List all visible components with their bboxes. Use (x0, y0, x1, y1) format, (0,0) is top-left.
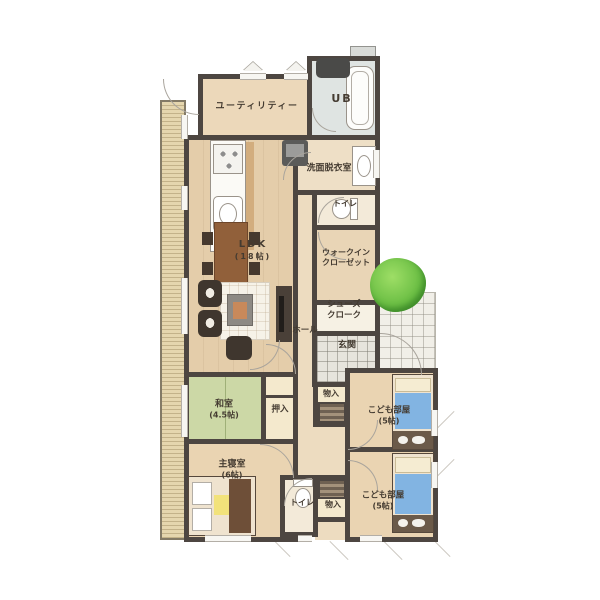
label-storage-lower: 物入 (325, 500, 341, 510)
washbasin-bowl (357, 155, 371, 177)
window (205, 535, 251, 542)
floor-chair (226, 336, 252, 360)
label-washroom: 洗面脱衣室 (306, 163, 351, 174)
sliding-door-to-deck (181, 278, 188, 334)
table-top-item (233, 302, 247, 319)
eave-mark (329, 541, 348, 560)
label-entrance: 玄関 (338, 340, 356, 351)
label-kids-lower: こども部屋(5帖) (362, 491, 405, 512)
armchair (198, 280, 222, 307)
heat-pump-unit (316, 58, 350, 78)
window (284, 73, 308, 80)
shelf-item (412, 519, 425, 527)
label-hall: ホール (292, 326, 318, 337)
awning-window-mark (243, 62, 263, 71)
bed-foot-shelf (393, 431, 433, 449)
window (298, 535, 312, 542)
bed-cushion (214, 495, 230, 515)
tv-screen (279, 296, 284, 332)
floor-plan: ユーティリティー UB 洗面脱衣室 トイレ ウォークインクローゼット シューズク… (0, 0, 600, 600)
stove (213, 144, 243, 174)
window (360, 535, 382, 542)
bed-pillow (192, 508, 212, 531)
window (373, 150, 380, 178)
master-bed (188, 476, 256, 536)
window (431, 410, 438, 436)
dining-chair (249, 262, 260, 275)
sliding-door-to-deck (181, 385, 188, 437)
label-toilet-lower: トイレ (290, 498, 314, 508)
label-ldk: LDK(18帖) (235, 239, 271, 262)
window (181, 115, 188, 139)
bed-blanket (229, 479, 251, 533)
living-table (227, 294, 253, 326)
closet-divider-wall (263, 395, 296, 398)
dining-chair (202, 232, 213, 245)
window (181, 186, 188, 210)
eave-mark (435, 411, 454, 430)
dining-chair (202, 262, 213, 275)
label-oshiire: 押入 (271, 405, 288, 416)
label-storage-upper: 物入 (323, 389, 339, 399)
storage-shelf (318, 402, 346, 423)
tv-board (276, 286, 292, 342)
bed-pillow (395, 457, 431, 473)
label-toilet-upper: トイレ (333, 199, 357, 209)
bed-pillow (192, 482, 212, 505)
armchair (198, 310, 222, 337)
label-master-bedroom: 主寝室(6帖) (218, 459, 245, 480)
bed-pillow (395, 378, 431, 392)
shelf-item (398, 436, 408, 444)
label-japanese-room: 和室(4.5帖) (209, 399, 238, 420)
bed-foot-shelf (393, 515, 433, 532)
storage-shelf (318, 479, 346, 499)
label-kids-upper: こども部屋(5帖) (368, 406, 411, 427)
label-shoe-closet: シューズクローク (327, 299, 361, 320)
window (240, 73, 266, 80)
label-walk-in-closet: ウォークインクローゼット (322, 248, 370, 268)
shelf-item (412, 436, 425, 444)
window (431, 462, 438, 488)
label-utility: ユーティリティー (216, 101, 299, 112)
awning-window-mark (286, 62, 306, 71)
label-ub: UB (331, 92, 352, 106)
eave-mark (435, 459, 454, 478)
shelf-item (398, 519, 408, 527)
eave-mark (383, 541, 402, 560)
bathtub-inner (351, 71, 369, 125)
